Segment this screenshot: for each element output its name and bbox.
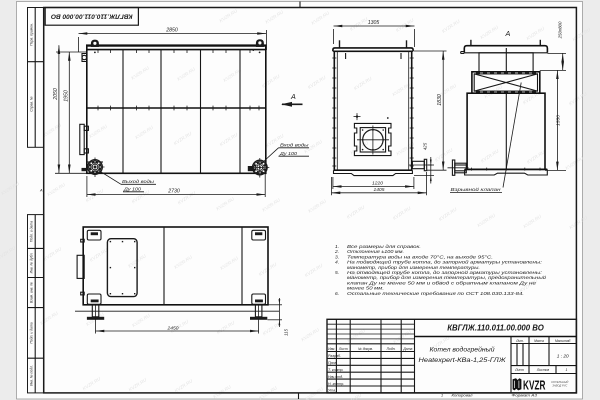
svg-text:Листов: Листов	[536, 368, 550, 372]
svg-text:Изм.: Изм.	[328, 347, 335, 351]
svg-text:На подводящей трубе котла, до: На подводящей трубе котла, до запорной а…	[347, 259, 543, 266]
svg-text:425: 425	[423, 142, 428, 150]
svg-text:А: А	[290, 92, 296, 101]
svg-text:1550: 1550	[556, 115, 562, 126]
svg-text:4.: 4.	[335, 260, 339, 266]
svg-text:2.: 2.	[334, 249, 339, 255]
svg-text:1220: 1220	[372, 181, 383, 187]
svg-text:Пров.: Пров.	[328, 361, 337, 365]
svg-text:1 : 20: 1 : 20	[557, 354, 569, 360]
svg-text:Отклонения ±100 мм.: Отклонения ±100 мм.	[347, 249, 404, 255]
svg-text:Все размеры для справок.: Все размеры для справок.	[347, 244, 421, 250]
svg-text:Лист: Лист	[338, 347, 348, 351]
svg-text:2730: 2730	[167, 188, 180, 194]
svg-text:Н. контр.: Н. контр.	[328, 382, 344, 386]
svg-text:Лист: Лист	[514, 368, 524, 372]
svg-text:Температура воды на входе 70°С: Температура воды на входе 70°С, на выход…	[347, 254, 493, 260]
svg-text:Котел водогрейный: Котел водогрейный	[430, 347, 496, 354]
svg-text:КВГЛЖ.110.011.00.000 ВО: КВГЛЖ.110.011.00.000 ВО	[447, 324, 544, 333]
svg-text:1: 1	[566, 368, 568, 372]
svg-text:КВГЛЖ.110.011.00.000 ВО: КВГЛЖ.110.011.00.000 ВО	[50, 13, 133, 20]
svg-text:250х800: 250х800	[557, 21, 562, 39]
svg-text:манометр, прибор для измерения: манометр, прибор для измерения температу…	[347, 274, 546, 281]
svg-text:Утв.: Утв.	[328, 389, 336, 393]
svg-text:На отводящей трубе котла, до з: На отводящей трубе котла, до запорной ар…	[347, 269, 543, 276]
svg-text:Подп. и дата: Подп. и дата	[29, 322, 33, 343]
svg-text:Формат А3: Формат А3	[512, 394, 539, 398]
svg-text:Справ. №: Справ. №	[29, 96, 33, 112]
svg-text:KVZR: KVZR	[523, 379, 546, 393]
svg-text:1405: 1405	[374, 187, 385, 193]
svg-text:2050: 2050	[53, 88, 59, 101]
svg-text:1.: 1.	[335, 244, 339, 250]
svg-text:ЗАВОД РУС: ЗАВОД РУС	[552, 384, 567, 388]
svg-text:Т. контр.: Т. контр.	[328, 368, 344, 372]
svg-text:Копировал: Копировал	[452, 394, 474, 398]
svg-text:манометр, прибор для измерения: манометр, прибор для измерения температу…	[347, 265, 480, 271]
svg-text:2850: 2850	[165, 28, 178, 34]
svg-text:2450: 2450	[167, 325, 179, 331]
svg-text:Взам. инв. №: Взам. инв. №	[29, 282, 33, 303]
svg-text:менее 50 мм.: менее 50 мм.	[347, 286, 384, 292]
svg-text:Масштаб: Масштаб	[555, 339, 571, 343]
svg-text:1950: 1950	[64, 90, 70, 102]
svg-text:Heatexpert-КВа-1,25-ГЛЖ: Heatexpert-КВа-1,25-ГЛЖ	[419, 357, 506, 364]
svg-text:3.: 3.	[335, 254, 339, 260]
svg-text:5.: 5.	[335, 270, 339, 276]
svg-text:Разраб.: Разраб.	[328, 354, 341, 358]
svg-text:Нач.отд.: Нач.отд.	[328, 375, 343, 379]
svg-text:Лит.: Лит.	[515, 339, 524, 343]
svg-text:№ докум.: № докум.	[358, 347, 373, 351]
svg-text:Перв. примен.: Перв. примен.	[29, 23, 33, 46]
svg-text:Масса: Масса	[534, 339, 544, 343]
svg-text:Взрывной клапан: Взрывной клапан	[451, 186, 501, 193]
svg-text:Инв. № дубл.: Инв. № дубл.	[29, 253, 33, 274]
svg-text:Подп.: Подп.	[387, 347, 396, 351]
svg-text:клапан Ду не менее 50 мм и обв: клапан Ду не менее 50 мм и обвод с обрат…	[347, 280, 536, 286]
svg-text:Подп. и дата: Подп. и дата	[29, 221, 33, 242]
svg-text:А: А	[505, 29, 511, 38]
svg-text:Остальные технические требован: Остальные технические требования по ОСТ …	[347, 291, 524, 297]
svg-text:Инв. № подл.: Инв. № подл.	[29, 365, 33, 386]
svg-text:115: 115	[284, 328, 289, 336]
svg-text:КОТЕЛЬНЫЙ: КОТЕЛЬНЫЙ	[551, 380, 568, 384]
svg-text:1830: 1830	[437, 94, 443, 106]
svg-text:Дата: Дата	[402, 347, 412, 351]
svg-text:1305: 1305	[368, 20, 380, 26]
svg-text:1: 1	[441, 394, 443, 398]
svg-text:6.: 6.	[335, 291, 339, 297]
svg-text:А: А	[39, 189, 43, 193]
